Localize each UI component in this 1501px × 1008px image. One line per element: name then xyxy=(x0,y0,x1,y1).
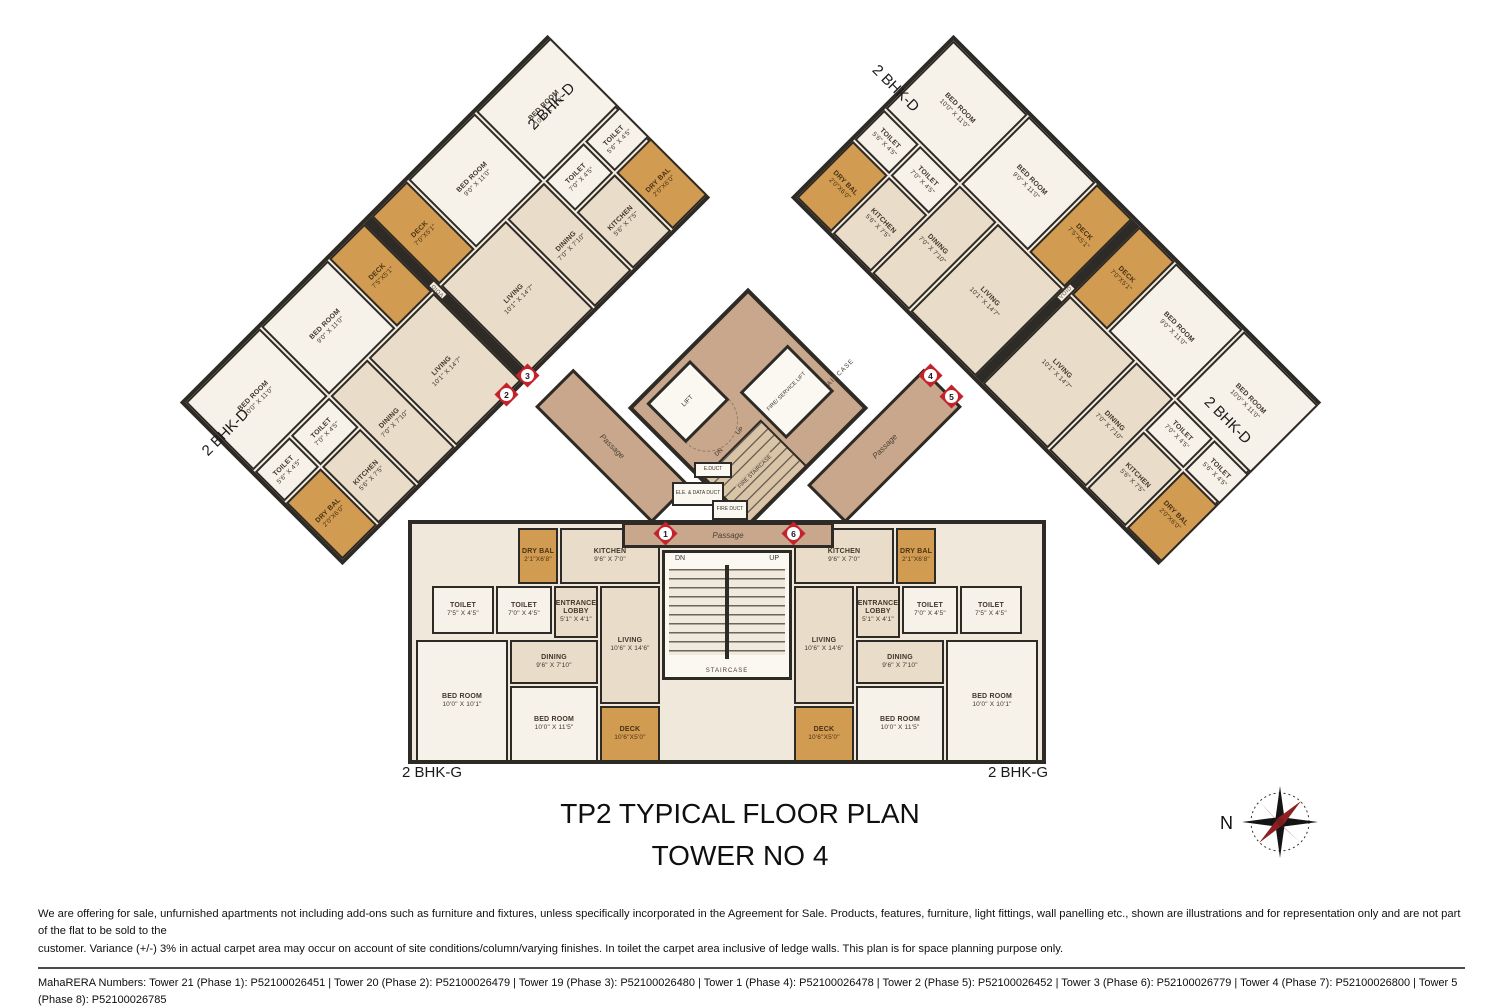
compass-center xyxy=(1276,818,1284,826)
room-deck: DECK10'6"X5'0" xyxy=(600,706,660,762)
room-dims-label: 7'0" X 4'5" xyxy=(914,610,946,618)
tower-subtitle: TOWER NO 4 xyxy=(440,840,1040,872)
room-name-label: LIVING xyxy=(618,637,643,645)
compass-rose: N xyxy=(1216,782,1320,862)
room-name-label: TOILET xyxy=(978,602,1004,610)
room-dining: DINING9'6" X 7'10" xyxy=(510,640,598,684)
unit-marker-number: 3 xyxy=(521,369,534,382)
room-name-label: DRY BAL xyxy=(522,548,554,556)
room-dims-label: 10'0" X 10'1" xyxy=(972,701,1011,709)
room-name-label: KITCHEN xyxy=(594,548,627,556)
unit-marker-number: 2 xyxy=(500,388,513,401)
up-label: UP xyxy=(769,555,779,562)
room-dims-label: 9'6" X 7'10" xyxy=(536,662,572,670)
passage-label: Passage xyxy=(598,432,626,460)
room-name-label: TOILET xyxy=(917,602,943,610)
room-name-label: TOILET xyxy=(450,602,476,610)
room-dims-label: 5'1" X 4'1" xyxy=(862,616,894,624)
stair-flight-down xyxy=(669,569,725,655)
room-dims-label: 10'6"X5'0" xyxy=(614,734,646,742)
room-name-label: BED ROOM xyxy=(880,716,920,724)
room-dims-label: 10'6" X 14'6" xyxy=(610,645,649,653)
room-dims-label: 7'0" X 4'5" xyxy=(508,610,540,618)
passage-label: Passage xyxy=(712,531,743,540)
room-name-label: LIVING xyxy=(812,637,837,645)
room-toilet1: TOILET7'5" X 4'5" xyxy=(960,586,1022,634)
room-toilet2: TOILET7'0" X 4'5" xyxy=(902,586,958,634)
fire-duct: FIRE DUCT xyxy=(712,500,748,520)
room-name-label: DINING xyxy=(887,654,913,662)
room-name-label: ENTRANCE LOBBY xyxy=(556,600,597,617)
room-dims-label: 9'6" X 7'0" xyxy=(828,556,860,564)
footer: We are offering for sale, unfurnished ap… xyxy=(38,906,1465,1008)
room-dims-label: 9'6" X 7'0" xyxy=(594,556,626,564)
room-dining: DINING9'6" X 7'10" xyxy=(856,640,944,684)
staircase-shaft: DN UP STAIRCASE xyxy=(662,550,792,680)
bottom-block: Passage ENTRANCE LOBBY5'1" X 4'1"LIVING1… xyxy=(408,520,1046,764)
room-dims-label: 2'1"X6'8" xyxy=(902,556,930,564)
room-living: LIVING10'6" X 14'6" xyxy=(794,586,854,704)
unit-marker-number: 4 xyxy=(924,369,937,382)
room-entrance: ENTRANCE LOBBY5'1" X 4'1" xyxy=(554,586,598,638)
unit-label-2bhkg-left: 2 BHK-G xyxy=(402,764,462,781)
room-name-label: BED ROOM xyxy=(534,716,574,724)
room-name-label: ENTRANCE LOBBY xyxy=(858,600,899,617)
room-dims-label: 2'1"X6'8" xyxy=(524,556,552,564)
room-dims-label: 5'1" X 4'1" xyxy=(560,616,592,624)
title-block: TP2 TYPICAL FLOOR PLAN TOWER NO 4 xyxy=(440,798,1040,872)
room-name-label: DINING xyxy=(541,654,567,662)
staircase-label: STAIRCASE xyxy=(665,668,789,674)
dn-label: DN xyxy=(675,555,685,562)
room-name-label: KITCHEN xyxy=(828,548,861,556)
plan-title: TP2 TYPICAL FLOOR PLAN xyxy=(440,798,1040,830)
room-name-label: TOILET xyxy=(511,602,537,610)
electrical-duct: E.DUCT xyxy=(694,462,732,478)
room-entrance: ENTRANCE LOBBY5'1" X 4'1" xyxy=(856,586,900,638)
room-toilet1: TOILET7'5" X 4'5" xyxy=(432,586,494,634)
room-living: LIVING10'6" X 14'6" xyxy=(600,586,660,704)
room-bedroom2: BED ROOM10'0" X 10'1" xyxy=(946,640,1038,762)
room-dims-label: 10'0" X 11'5" xyxy=(881,724,920,732)
room-name-label: DRY BAL xyxy=(900,548,932,556)
unit-2bhkg-left: ENTRANCE LOBBY5'1" X 4'1"LIVING10'6" X 1… xyxy=(414,528,660,762)
room-bedroom1: BED ROOM10'0" X 11'5" xyxy=(856,686,944,762)
room-name-label: DECK xyxy=(814,726,835,734)
room-dims-label: 7'5" X 4'5" xyxy=(447,610,479,618)
room-drybal: DRY BAL2'1"X6'8" xyxy=(518,528,558,584)
unit-marker-number: 1 xyxy=(659,527,672,540)
passage-label: Passage xyxy=(870,432,898,460)
room-deck: DECK10'6"X5'0" xyxy=(794,706,854,762)
room-dims-label: 10'0" X 11'5" xyxy=(535,724,574,732)
room-toilet2: TOILET7'0" X 4'5" xyxy=(496,586,552,634)
room-drybal: DRY BAL2'1"X6'8" xyxy=(896,528,936,584)
room-name-label: BED ROOM xyxy=(442,693,482,701)
room-bedroom1: BED ROOM10'0" X 11'5" xyxy=(510,686,598,762)
north-label: N xyxy=(1220,813,1233,833)
unit-marker-number: 5 xyxy=(945,390,958,403)
room-dims-label: 10'6" X 14'6" xyxy=(804,645,843,653)
room-dims-label: 10'0" X 10'1" xyxy=(442,701,481,709)
unit-marker-number: 6 xyxy=(787,527,800,540)
stair-flight-up xyxy=(729,569,785,655)
disclaimer-line-2: customer. Variance (+/-) 3% in actual ca… xyxy=(38,941,1465,958)
floor-plan-page: BED ROOM9'0" X 11'0"BED ROOM10'0" X 11'0… xyxy=(0,0,1501,1008)
footer-divider xyxy=(38,967,1465,969)
room-name-label: BED ROOM xyxy=(972,693,1012,701)
room-dims-label: 10'6"X5'0" xyxy=(808,734,840,742)
rera-numbers-line-1: MahaRERA Numbers: Tower 21 (Phase 1): P5… xyxy=(38,975,1465,1008)
room-bedroom2: BED ROOM10'0" X 10'1" xyxy=(416,640,508,762)
unit-label-2bhkg-right: 2 BHK-G xyxy=(988,764,1048,781)
room-dims-label: 7'5" X 4'5" xyxy=(975,610,1007,618)
room-name-label: DECK xyxy=(620,726,641,734)
unit-2bhkg-right: ENTRANCE LOBBY5'1" X 4'1"LIVING10'6" X 1… xyxy=(794,528,1040,762)
room-dims-label: 9'6" X 7'10" xyxy=(882,662,918,670)
disclaimer-line-1: We are offering for sale, unfurnished ap… xyxy=(38,906,1465,941)
